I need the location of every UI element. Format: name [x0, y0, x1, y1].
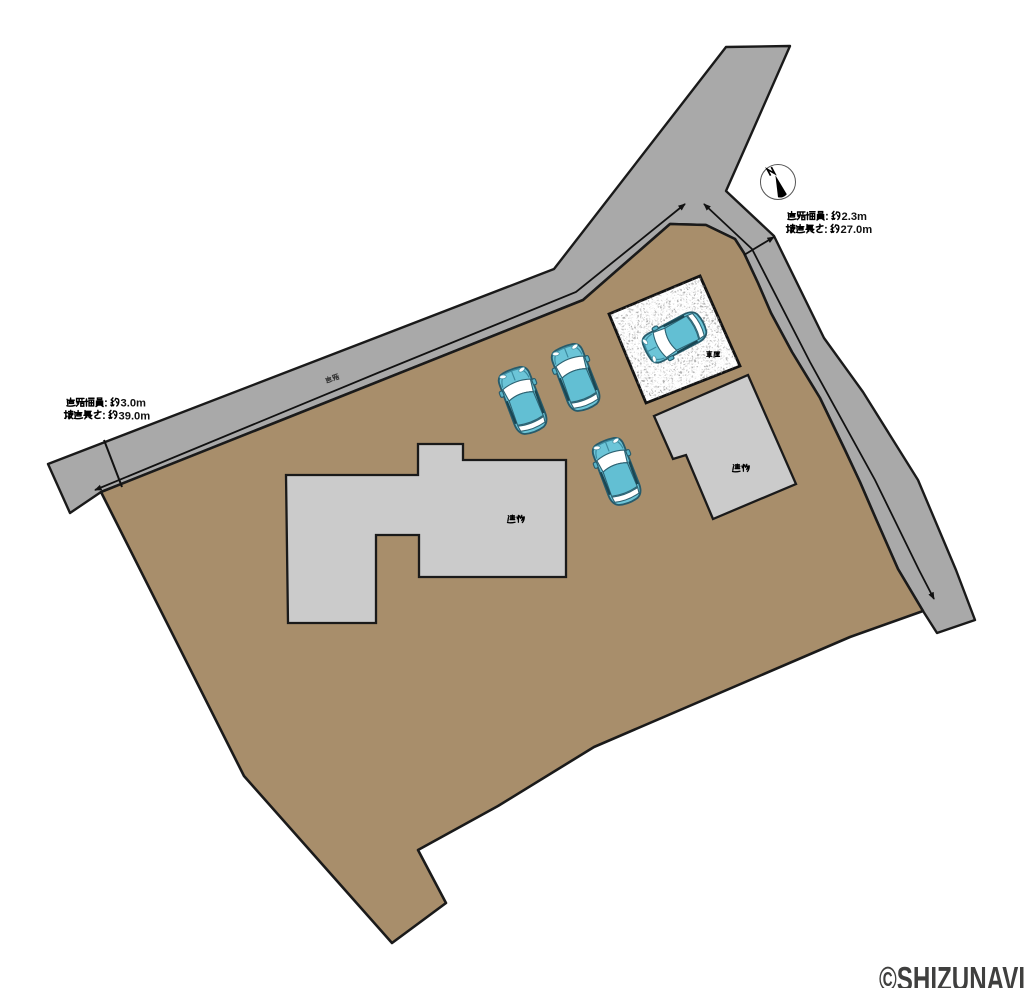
- svg-text::: :: [102, 410, 106, 422]
- svg-text::: :: [104, 398, 108, 410]
- svg-text::: :: [825, 211, 829, 223]
- svg-text:27.0m: 27.0m: [841, 224, 873, 236]
- svg-text:3.0m: 3.0m: [121, 398, 147, 410]
- svg-text::: :: [824, 224, 828, 236]
- svg-text:2.3m: 2.3m: [842, 211, 868, 223]
- svg-text:39.0m: 39.0m: [119, 411, 151, 423]
- svg-text:©SHIZUNAVI: ©SHIZUNAVI: [879, 960, 1024, 988]
